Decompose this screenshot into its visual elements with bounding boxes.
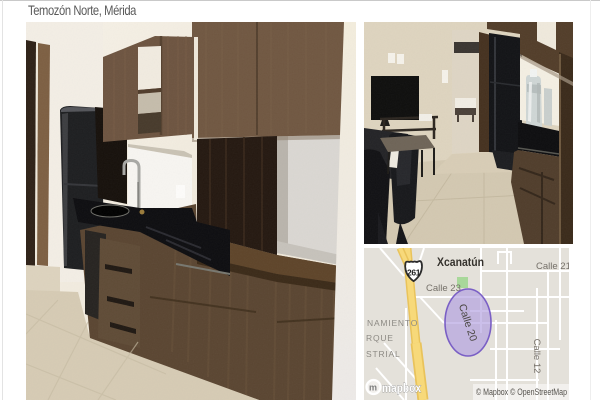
svg-text:NAMIENTO: NAMIENTO [367,318,418,328]
svg-text:Calle 21: Calle 21 [536,261,569,272]
svg-text:mapbox: mapbox [382,381,421,395]
svg-text:Calle 12: Calle 12 [531,339,542,374]
svg-text:261: 261 [407,268,421,278]
svg-text:RQUE: RQUE [366,333,394,343]
svg-text:Xcanatún: Xcanatún [437,257,484,269]
svg-text:Calle 23: Calle 23 [426,283,461,294]
svg-text:STRIAL: STRIAL [366,349,401,359]
svg-text:© Mapbox © OpenStreetMap: © Mapbox © OpenStreetMap [476,387,567,398]
svg-text:m: m [369,383,377,393]
